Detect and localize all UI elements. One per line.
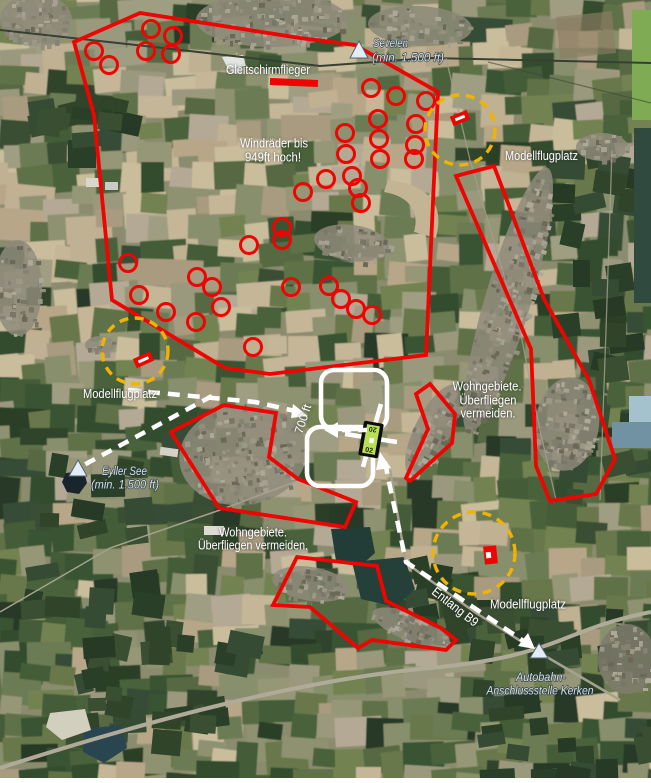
svg-text:Überfliegen vermeiden.: Überfliegen vermeiden.	[198, 538, 308, 553]
svg-text:02: 02	[365, 447, 374, 455]
svg-text:Modellflugplatz: Modellflugplatz	[490, 597, 566, 612]
svg-text:(min. 1.500 ft): (min. 1.500 ft)	[372, 51, 444, 65]
svg-text:Sevelen: Sevelen	[373, 36, 408, 50]
svg-text:Autobahn-: Autobahn-	[515, 670, 566, 684]
svg-text:Gleitschirmflieger: Gleitschirmflieger	[226, 62, 311, 77]
svg-text:vermeiden.: vermeiden.	[461, 406, 516, 421]
svg-text:Eyller See: Eyller See	[102, 464, 147, 478]
svg-text:20: 20	[368, 425, 377, 433]
svg-text:Modellflugplatz: Modellflugplatz	[505, 148, 578, 163]
svg-text:(min. 1.500 ft): (min. 1.500 ft)	[91, 478, 159, 492]
svg-text:Modellflugplatz: Modellflugplatz	[83, 386, 157, 401]
svg-text:Wohngebiete.: Wohngebiete.	[453, 379, 522, 394]
svg-text:949ft hoch!: 949ft hoch!	[245, 150, 301, 165]
svg-text:Windräder bis: Windräder bis	[240, 136, 308, 151]
svg-text:Anschlussstelle Kerken: Anschlussstelle Kerken	[486, 684, 594, 698]
